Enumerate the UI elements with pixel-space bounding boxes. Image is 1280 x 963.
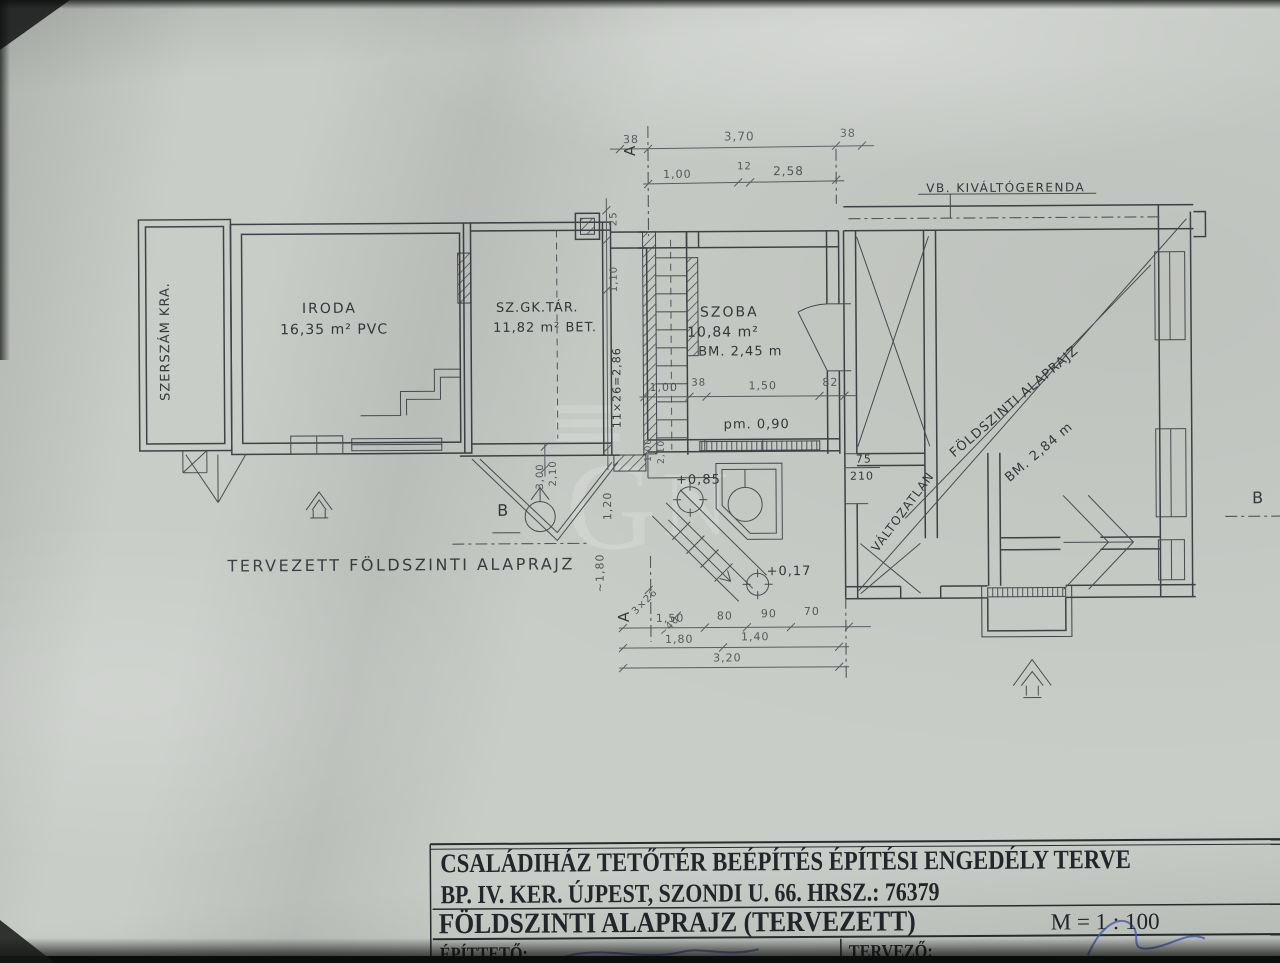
stair-formula: 11×26=2,86: [611, 347, 622, 428]
dim-bottom: 80: [717, 610, 733, 621]
wall-hatching: [457, 215, 1065, 600]
level-085: +0,85: [676, 474, 721, 487]
dim-mid: 82: [822, 377, 838, 388]
dim-vert: 3,00: [536, 463, 546, 489]
dim-vert: 1,20: [602, 492, 613, 521]
titleblock-client-label: ÉPÍTTETŐ:: [440, 945, 528, 963]
dim-top: 3,70: [724, 130, 755, 142]
section-marker-b-left: B: [497, 503, 509, 519]
beam-note: VB. KIVÁLTÓGERENDA: [926, 181, 1085, 194]
room-area-iroda: 16,35 m² PVC: [280, 323, 388, 338]
floorplan-drawing: G N: [0, 0, 1280, 963]
watermark: G N: [556, 404, 729, 576]
titleblock-address: BP. IV. KER. ÚJPEST, SZONDI U. 66. HRSZ.…: [440, 879, 939, 908]
door-size-width: 75: [856, 454, 872, 465]
titleblock-drawing-name: FÖLDSZINTI ALAPRAJZ (TERVEZETT): [439, 907, 916, 939]
dim-top: 38: [840, 128, 856, 139]
dim-mid: 38: [691, 379, 706, 389]
room-label-szerszam: SZERSZÁM KRA.: [159, 282, 173, 401]
dim-vert: 2,10: [549, 460, 559, 486]
dim-top: 1,00: [663, 169, 692, 180]
section-marker-a-bottom: A: [617, 611, 632, 622]
dim-mid: 1,00: [649, 382, 678, 393]
dim-bottom: 1,80: [665, 634, 694, 645]
scanned-floorplan-page: G N: [0, 0, 1280, 963]
titleblock-scale: M = 1 : 100: [1051, 910, 1160, 934]
room-label-iroda: IRODA: [302, 302, 357, 316]
dim-vert: 2,10: [658, 440, 667, 464]
room-label-szoba: SZOBA: [700, 305, 759, 319]
door-size-height: 210: [850, 471, 874, 482]
room-label-szgktar: SZ.GK.TÁR.: [496, 301, 579, 315]
dim-top: 38: [623, 134, 639, 145]
plan-title: TERVEZETT FÖLDSZINTI ALAPRAJZ: [227, 556, 575, 574]
dim-vert: ~1,80: [594, 553, 605, 592]
dim-bottom: 70: [804, 606, 820, 617]
dim-left-110: 1,10: [610, 266, 620, 292]
walls: [138, 205, 1208, 643]
paper-sheet: G N: [0, 0, 1280, 963]
titleblock-project-title: CSALÁDIHÁZ TETŐTÉR BEÉPÍTÉS ÉPÍTÉSI ENGE…: [440, 846, 1131, 877]
dim-vert: 1,00: [645, 438, 654, 462]
parapet-note: pm. 0,90: [724, 418, 790, 431]
dim-top: 12: [737, 162, 752, 172]
room-area-szgktar: 11,82 m² BET.: [493, 321, 597, 335]
dim-bottom: 1,40: [741, 631, 770, 642]
dim-left-25: 25: [609, 211, 619, 226]
room-height-szoba: BM. 2,45 m: [698, 345, 782, 359]
section-marker-a-top: A: [623, 145, 638, 156]
dim-top: 2,58: [773, 165, 804, 177]
titleblock-designer-label: TERVEZŐ:: [849, 942, 933, 962]
dim-bottom: 90: [761, 608, 777, 619]
level-017: +0,17: [767, 565, 812, 578]
room-area-szoba: 10,84 m²: [687, 325, 759, 339]
svg-text:N: N: [662, 452, 729, 554]
dim-bottom: 3,20: [713, 652, 742, 663]
section-marker-b-right: B: [1252, 490, 1264, 506]
dim-mid: 1,50: [748, 380, 777, 391]
